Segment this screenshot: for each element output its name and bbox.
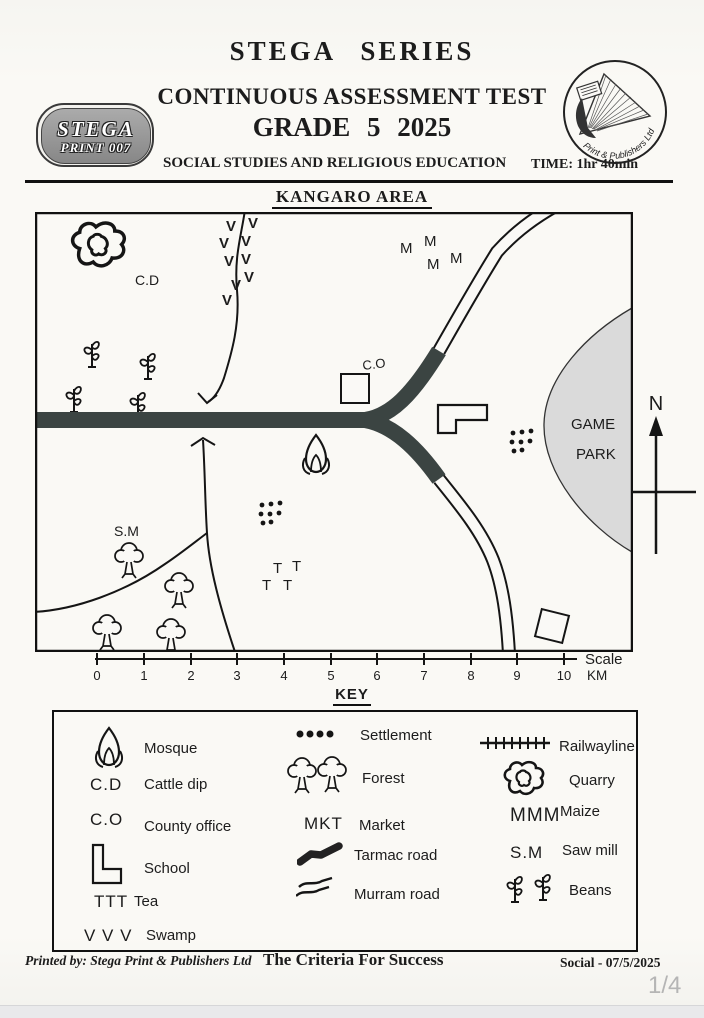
north-label: N xyxy=(649,393,663,415)
beans-icon xyxy=(140,354,155,379)
document-reference: Social - 07/5/2025 xyxy=(560,955,661,971)
viewer-bottom-bar xyxy=(0,1005,704,1018)
scale-tick-labels: 0 1 2 3 4 5 6 7 8 9 10 xyxy=(93,668,571,683)
rotated-square-building xyxy=(535,609,569,643)
svg-text:T: T xyxy=(262,577,271,594)
key-symbol-saw-mill: S.M xyxy=(510,843,543,863)
beans-key-icon xyxy=(500,870,560,906)
svg-text:V: V xyxy=(248,215,258,232)
stream-arrow-down xyxy=(198,393,217,403)
svg-text:M: M xyxy=(400,240,413,257)
scale-unit: KM xyxy=(587,668,607,683)
key-symbol-county-office: C.O xyxy=(90,810,123,830)
svg-text:V: V xyxy=(231,277,241,294)
settlement-key-icon xyxy=(294,728,340,740)
quarry-key-icon xyxy=(497,758,549,798)
key-label-forest: Forest xyxy=(362,770,405,787)
map-border xyxy=(36,213,632,651)
header-divider xyxy=(25,180,673,183)
forest-tree-icon xyxy=(165,573,193,608)
key-label-railwayline: Railwayline xyxy=(559,738,635,755)
subject-title: SOCIAL STUDIES AND RELIGIOUS EDUCATION xyxy=(163,155,506,172)
key-label-settlement: Settlement xyxy=(360,727,432,744)
svg-text:V: V xyxy=(224,253,234,270)
settlement-east xyxy=(510,429,534,454)
badge-sub-text: PRINT 007 xyxy=(61,141,132,154)
quarry-icon xyxy=(73,223,125,266)
murram-road-south xyxy=(439,479,509,652)
book-icon xyxy=(577,81,602,100)
railway-key-icon xyxy=(478,736,552,750)
saw-mill-label: S.M xyxy=(114,523,139,539)
cattle-dip-label: C.D xyxy=(135,272,159,288)
county-office-building xyxy=(341,374,369,403)
badge-brand-text: STEGA xyxy=(57,119,135,140)
beans-icon xyxy=(84,342,99,367)
forest-tree-icon xyxy=(93,615,121,650)
key-symbol-maize: MMM xyxy=(510,805,560,827)
svg-text:7: 7 xyxy=(420,668,427,683)
forest-key-icon xyxy=(286,756,348,796)
svg-text:3: 3 xyxy=(233,668,240,683)
forest-tree-icon xyxy=(115,543,143,578)
svg-text:5: 5 xyxy=(327,668,334,683)
key-symbol-swamp: V V V xyxy=(84,926,132,946)
mosque-key-icon xyxy=(92,724,126,770)
svg-text:V: V xyxy=(222,292,232,309)
motto-line: The Criteria For Success xyxy=(263,950,444,970)
map-key: Mosque C.D Cattle dip C.O County office … xyxy=(52,710,638,952)
stream-lower xyxy=(203,440,235,652)
school-icon xyxy=(438,405,487,433)
svg-text:V: V xyxy=(219,235,229,252)
svg-text:T: T xyxy=(283,577,292,594)
svg-text:T: T xyxy=(273,560,282,577)
svg-text:4: 4 xyxy=(280,668,287,683)
key-label-school: School xyxy=(144,860,190,877)
tarmac-road-key-icon xyxy=(297,842,343,866)
svg-text:8: 8 xyxy=(467,668,474,683)
svg-text:0: 0 xyxy=(93,668,100,683)
key-symbol-market: MKT xyxy=(304,814,343,834)
svg-text:V: V xyxy=(226,218,236,235)
svg-text:V: V xyxy=(244,269,254,286)
key-label-murram-road: Murram road xyxy=(354,886,440,903)
forest-tree-icon xyxy=(157,619,185,652)
svg-text:M: M xyxy=(427,256,440,273)
scale-label: Scale xyxy=(585,651,623,668)
murram-road-key-icon xyxy=(296,876,340,902)
publisher-logo: Print & Publishers Ltd xyxy=(558,58,670,168)
key-label-cattle-dip: Cattle dip xyxy=(144,776,207,793)
tea-markers: T T T T xyxy=(262,558,301,594)
svg-text:M: M xyxy=(450,250,463,267)
hand-icon xyxy=(576,98,596,138)
key-label-market: Market xyxy=(359,817,405,834)
key-label-mosque: Mosque xyxy=(144,740,197,757)
swamp-markers: V V V V V V V V V xyxy=(219,215,258,309)
mosque-icon xyxy=(303,435,329,474)
game-park-label-1: GAME xyxy=(571,416,615,433)
printed-by-line: Printed by: Stega Print & Publishers Ltd xyxy=(25,953,252,969)
key-label-tarmac-road: Tarmac road xyxy=(354,847,437,864)
badge-inner: STEGA PRINT 007 xyxy=(41,108,151,164)
key-symbol-cattle-dip: C.D xyxy=(90,775,122,795)
settlement-central xyxy=(259,501,283,526)
page-indicator: 1/4 xyxy=(648,972,681,1000)
key-label-quarry: Quarry xyxy=(569,772,615,789)
svg-text:9: 9 xyxy=(513,668,520,683)
key-label-county-office: County office xyxy=(144,818,231,835)
svg-text:V: V xyxy=(241,233,251,250)
key-label-maize: Maize xyxy=(560,803,600,820)
key-label-beans: Beans xyxy=(569,882,612,899)
school-key-icon xyxy=(88,842,124,886)
scale-bar: 0 1 2 3 4 5 6 7 8 9 10 Scale KM xyxy=(35,650,675,684)
svg-text:10: 10 xyxy=(557,668,571,683)
svg-text:1: 1 xyxy=(140,668,147,683)
key-label-saw-mill: Saw mill xyxy=(562,842,618,859)
key-label-tea: Tea xyxy=(134,893,158,910)
stega-print-badge-logo: STEGA PRINT 007 xyxy=(36,103,154,167)
kangaro-area-map: GAME PARK C.D V V V V V V V V V M M M M xyxy=(35,212,633,652)
game-park-label-2: PARK xyxy=(576,446,616,463)
county-office-label: C.O xyxy=(362,355,387,373)
key-title: KEY xyxy=(0,686,704,703)
compass-north-icon: N xyxy=(630,382,704,567)
svg-text:M: M xyxy=(424,233,437,250)
maize-markers: M M M M xyxy=(400,233,463,273)
svg-text:6: 6 xyxy=(373,668,380,683)
key-label-swamp: Swamp xyxy=(146,927,196,944)
map-title: KANGARO AREA xyxy=(0,187,704,207)
svg-text:T: T xyxy=(292,558,301,575)
murram-road-north xyxy=(439,212,559,351)
svg-text:V: V xyxy=(241,251,251,268)
key-symbol-tea: TTT xyxy=(94,892,128,912)
beans-icon xyxy=(66,387,81,412)
svg-text:2: 2 xyxy=(187,668,194,683)
